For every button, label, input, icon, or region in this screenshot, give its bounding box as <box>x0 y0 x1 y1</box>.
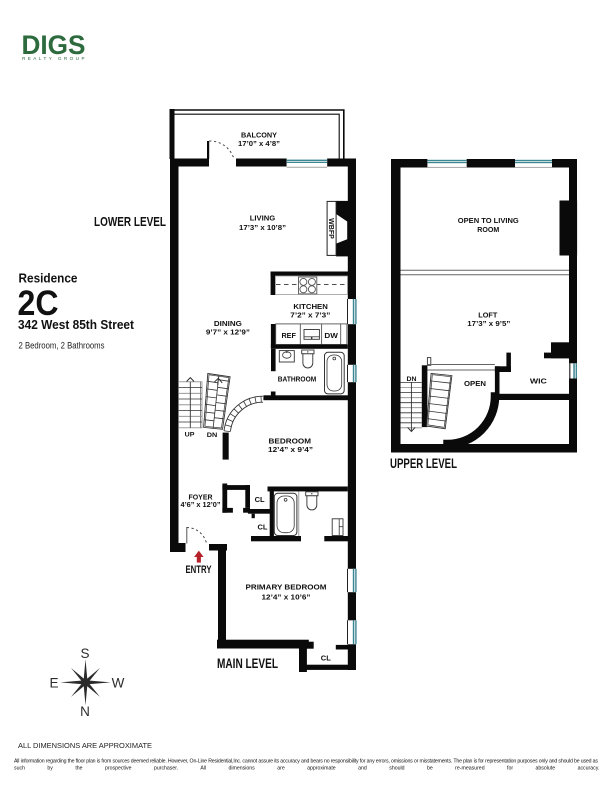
svg-text:WBFP: WBFP <box>327 218 334 239</box>
svg-text:MAIN LEVEL: MAIN LEVEL <box>217 656 278 671</box>
svg-text:LOWER LEVEL: LOWER LEVEL <box>94 214 166 229</box>
svg-text:DN: DN <box>407 376 417 383</box>
svg-text:N: N <box>80 704 90 719</box>
svg-text:E: E <box>49 676 58 691</box>
svg-text:7’2” x 7’3”: 7’2” x 7’3” <box>290 311 330 320</box>
svg-text:BATHROOM: BATHROOM <box>278 375 317 384</box>
svg-text:ENTRY: ENTRY <box>186 564 212 576</box>
svg-text:ALL DIMENSIONS ARE APPROXIMATE: ALL DIMENSIONS ARE APPROXIMATE <box>18 741 152 750</box>
svg-text:S: S <box>80 646 89 661</box>
svg-text:CL: CL <box>258 523 268 532</box>
svg-text:UP: UP <box>185 432 195 439</box>
svg-text:342 West 85th Street: 342 West 85th Street <box>18 317 135 332</box>
svg-text:4’6” x 12’0”: 4’6” x 12’0” <box>181 500 221 509</box>
svg-text:OPEN TO LIVING: OPEN TO LIVING <box>458 216 519 225</box>
svg-text:DN: DN <box>207 432 218 439</box>
svg-text:9’7” x 12’9”: 9’7” x 12’9” <box>206 328 250 337</box>
svg-text:REF: REF <box>281 331 296 340</box>
svg-text:ROOM: ROOM <box>477 225 499 234</box>
svg-text:OPEN: OPEN <box>464 379 486 388</box>
svg-text:12’4” x 9’4”: 12’4” x 9’4” <box>268 445 313 454</box>
svg-text:17’3” x 10’8”: 17’3” x 10’8” <box>239 223 286 232</box>
svg-text:LIVING: LIVING <box>250 214 276 223</box>
svg-text:CL: CL <box>255 495 265 504</box>
svg-text:17’3” x 9’5”: 17’3” x 9’5” <box>467 319 510 328</box>
svg-text:CL: CL <box>321 653 331 662</box>
svg-text:All information regarding the: All information regarding the floor plan… <box>14 759 598 765</box>
svg-text:17’0” x 4’8”: 17’0” x 4’8” <box>238 139 280 148</box>
svg-text:DW: DW <box>324 331 338 340</box>
svg-text:REALTY GROUP: REALTY GROUP <box>22 56 87 61</box>
svg-text:W: W <box>112 676 125 691</box>
svg-text:WIC: WIC <box>530 377 548 386</box>
svg-text:UPPER LEVEL: UPPER LEVEL <box>390 456 457 471</box>
svg-text:2 Bedroom, 2 Bathrooms: 2 Bedroom, 2 Bathrooms <box>19 341 105 351</box>
svg-text:PRIMARY BEDROOM: PRIMARY BEDROOM <box>246 583 327 592</box>
svg-text:such by the prospective purcha: such by the prospective purchaser. All d… <box>14 766 599 772</box>
svg-text:12’4” x 10’6”: 12’4” x 10’6” <box>262 592 311 601</box>
